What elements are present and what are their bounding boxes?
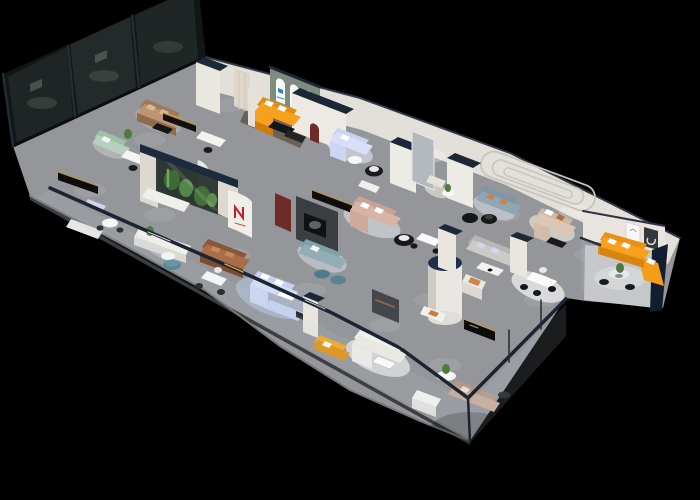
showcase-sofa-1 (27, 97, 57, 109)
nook-chair-2 (625, 284, 635, 290)
desk-chair (129, 165, 138, 171)
dining-chair-ra (520, 284, 528, 290)
dining-chair-sa (411, 243, 418, 248)
nook-side-plant (445, 184, 451, 192)
left-pillar-face (196, 62, 220, 114)
mid-pillar-1-face (438, 228, 456, 274)
dining-chair-rb (533, 290, 541, 296)
light-pool-2 (144, 208, 176, 222)
light-pool-7 (134, 133, 166, 147)
coffee-table-peri (348, 156, 362, 164)
dining-chair-rd (539, 267, 547, 273)
pedestal-top (485, 215, 493, 220)
cafe-chair-2c (214, 267, 222, 273)
tub-chair-cushion-1 (369, 166, 379, 172)
charcoal-tv-glow (309, 221, 321, 229)
dining-chair-rc (548, 286, 556, 292)
tub-chair-cushion-2 (399, 235, 410, 241)
tub-chair-black-3 (462, 213, 478, 223)
nook-table-base (615, 274, 623, 278)
floorplan-svg (0, 0, 700, 500)
nook-table-plant (616, 263, 624, 273)
nook-glass-panel (581, 238, 600, 296)
showroom-floorplan-render (0, 0, 700, 500)
plant-floor-1 (124, 129, 132, 139)
nook-art-dark (644, 227, 658, 250)
archroom-curtain (234, 68, 250, 112)
mid-pillar-2-face (510, 236, 527, 278)
desk-behind-chair (204, 147, 213, 153)
round-table-plant-green (442, 364, 450, 374)
teal-ottoman-2 (330, 276, 346, 285)
nook-chair-1 (599, 279, 609, 285)
teal-ottoman-1 (314, 270, 330, 279)
showcase-sofa-3 (153, 41, 183, 53)
showcase-sofa-2 (89, 70, 119, 82)
coffee-decor-black (488, 269, 493, 272)
